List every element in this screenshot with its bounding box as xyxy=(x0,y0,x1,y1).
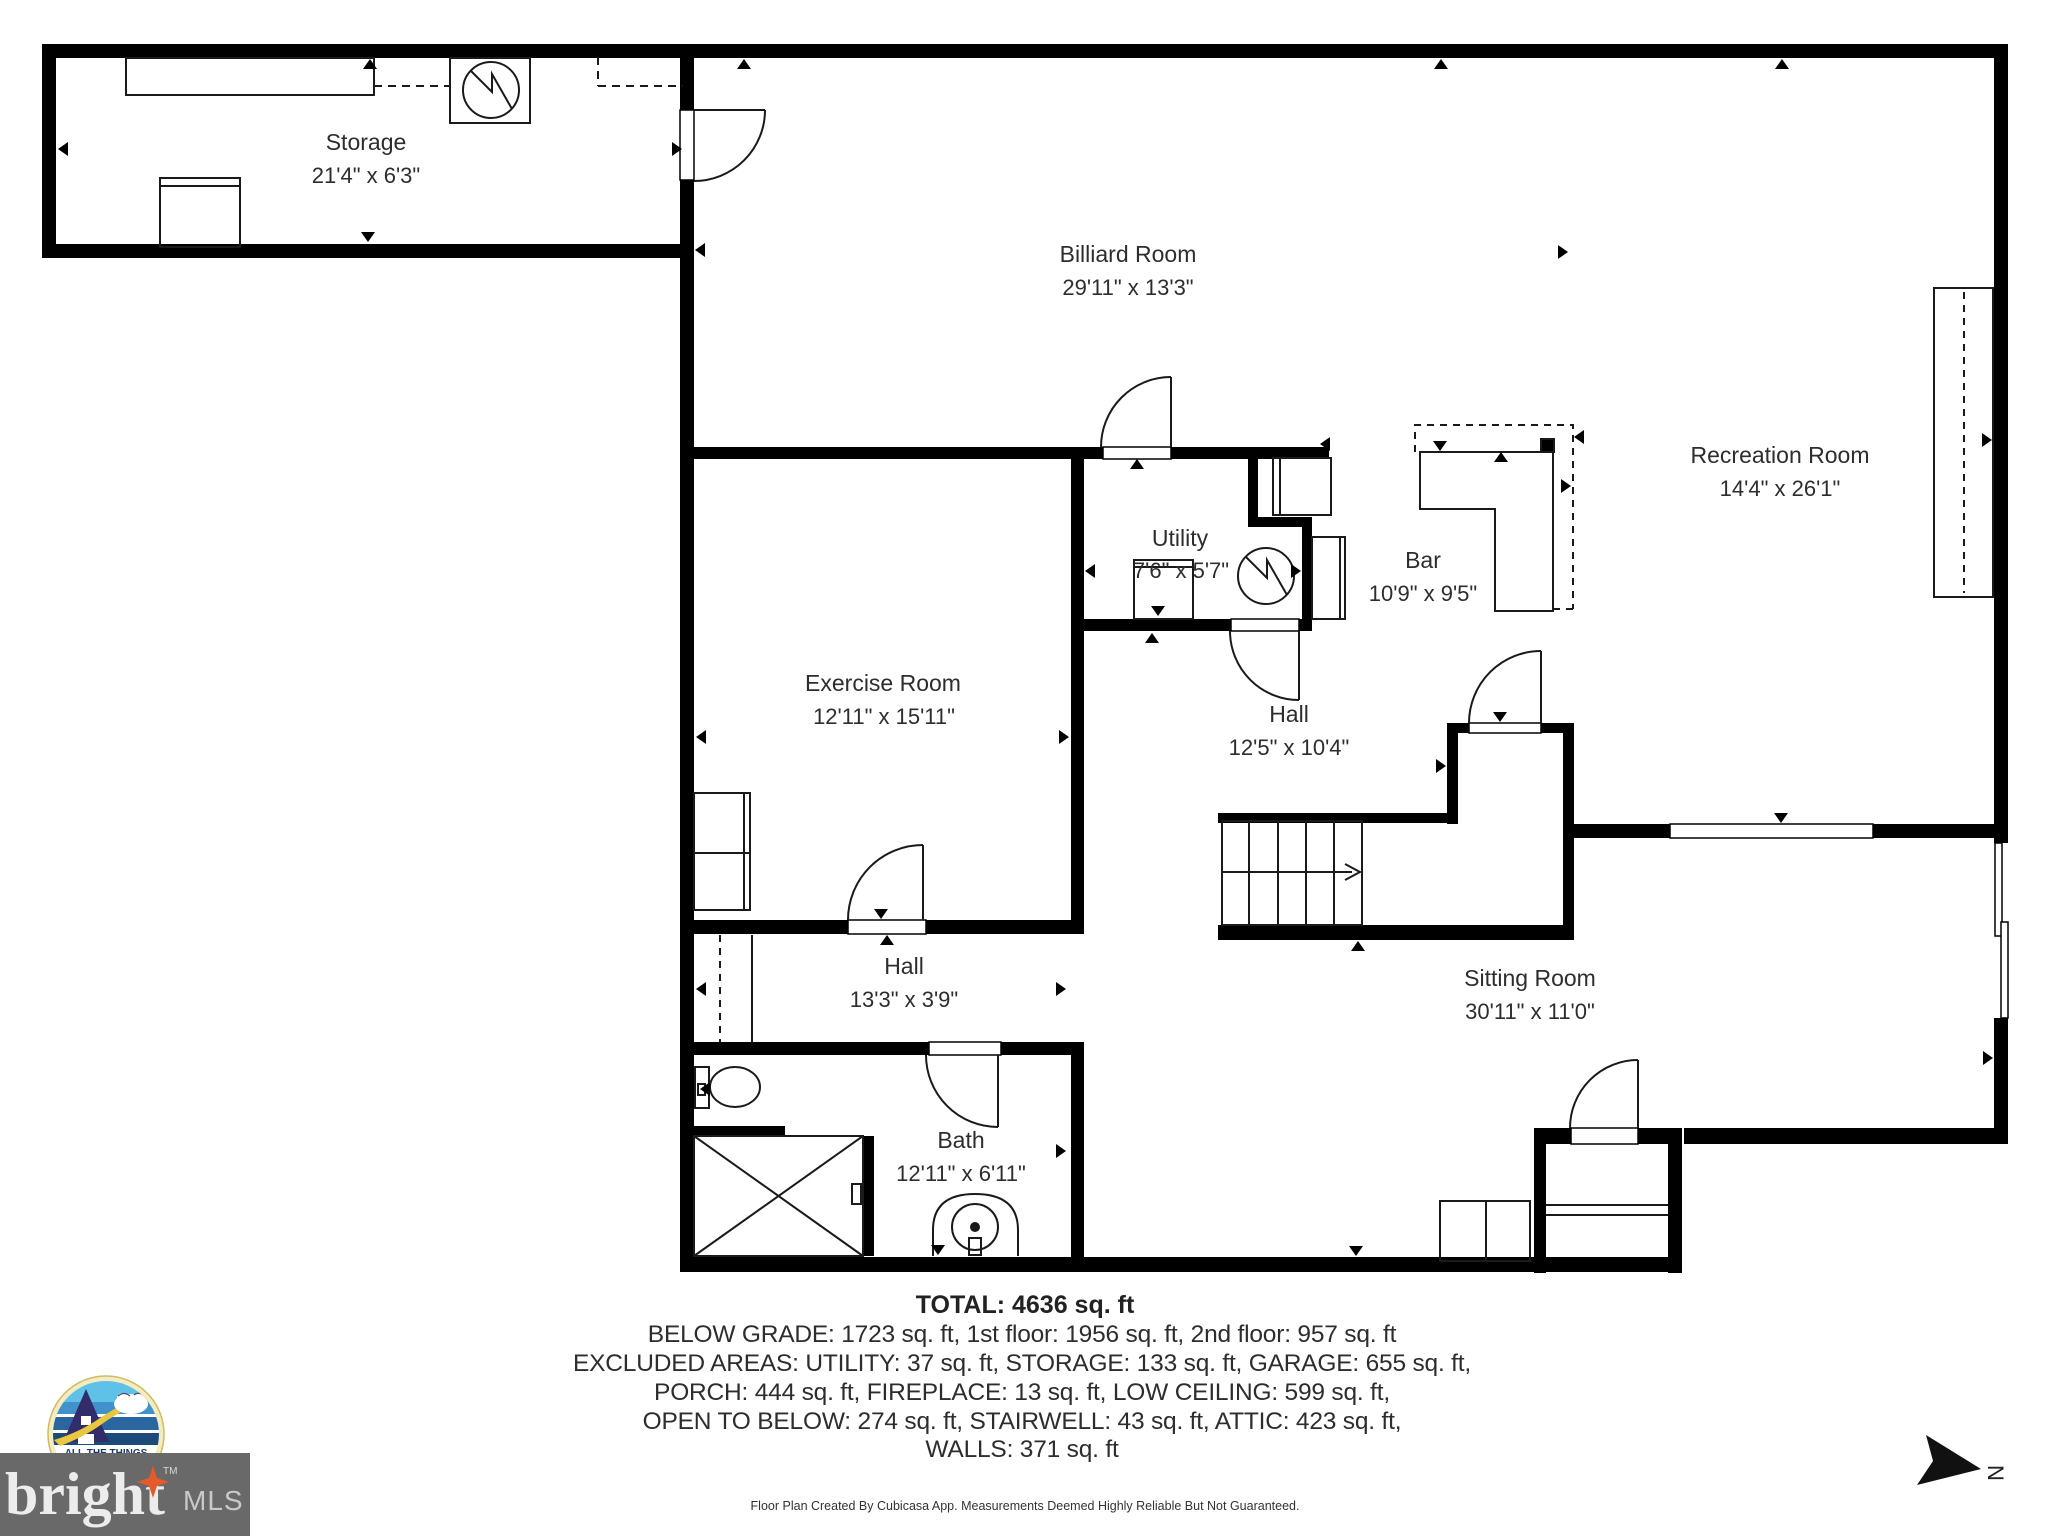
svg-text:Recreation Room: Recreation Room xyxy=(1691,442,1870,468)
svg-text:10'9" x 9'5": 10'9" x 9'5" xyxy=(1369,581,1477,606)
svg-text:14'4" x 26'1": 14'4" x 26'1" xyxy=(1720,476,1841,501)
svg-text:13'3" x 3'9": 13'3" x 3'9" xyxy=(850,987,958,1012)
svg-text:TM: TM xyxy=(163,1466,177,1477)
svg-text:Billiard Room: Billiard Room xyxy=(1060,241,1197,267)
svg-text:Hall: Hall xyxy=(1269,701,1309,727)
svg-text:12'11" x 15'11": 12'11" x 15'11" xyxy=(813,704,955,729)
svg-text:12'5" x 10'4": 12'5" x 10'4" xyxy=(1229,735,1350,760)
svg-text:Floor Plan Created By Cubicasa: Floor Plan Created By Cubicasa App. Meas… xyxy=(751,1499,1300,1513)
svg-text:Utility: Utility xyxy=(1152,525,1209,551)
svg-text:Bath: Bath xyxy=(937,1127,984,1153)
svg-text:OPEN TO BELOW: 274 sq. ft, STA: OPEN TO BELOW: 274 sq. ft, STAIRWELL: 43… xyxy=(643,1408,1402,1435)
svg-text:21'4" x 6'3": 21'4" x 6'3" xyxy=(312,163,420,188)
svg-text:bright: bright xyxy=(5,1461,165,1527)
svg-text:Hall: Hall xyxy=(884,953,924,979)
svg-text:WALLS: 371 sq. ft: WALLS: 371 sq. ft xyxy=(925,1436,1119,1463)
svg-text:EXCLUDED AREAS: UTILITY: 37 sq: EXCLUDED AREAS: UTILITY: 37 sq. ft, STOR… xyxy=(573,1350,1471,1377)
svg-text:Bar: Bar xyxy=(1405,547,1441,573)
svg-text:MLS: MLS xyxy=(183,1485,244,1516)
svg-text:PORCH: 444 sq. ft, FIREPLACE:: PORCH: 444 sq. ft, FIREPLACE: 13 sq. ft,… xyxy=(654,1379,1390,1406)
svg-text:30'11" x 11'0": 30'11" x 11'0" xyxy=(1465,999,1595,1024)
svg-text:TOTAL: 4636 sq. ft: TOTAL: 4636 sq. ft xyxy=(916,1291,1135,1319)
svg-text:N: N xyxy=(1983,1465,2008,1481)
svg-text:29'11" x 13'3": 29'11" x 13'3" xyxy=(1062,275,1193,300)
svg-text:Exercise Room: Exercise Room xyxy=(805,670,961,696)
svg-text:Sitting Room: Sitting Room xyxy=(1464,965,1596,991)
svg-text:7'6" x 5'7": 7'6" x 5'7" xyxy=(1133,558,1229,583)
svg-text:Storage: Storage xyxy=(326,129,407,155)
svg-text:BELOW GRADE: 1723 sq. ft, 1st: BELOW GRADE: 1723 sq. ft, 1st floor: 195… xyxy=(648,1321,1397,1348)
svg-text:12'11" x 6'11": 12'11" x 6'11" xyxy=(896,1161,1026,1186)
